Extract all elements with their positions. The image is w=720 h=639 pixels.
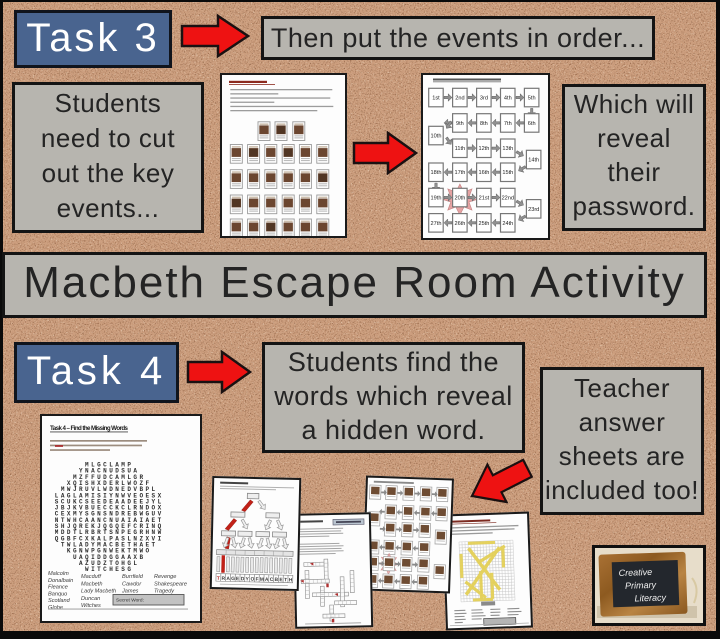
svg-text:14th: 14th [528,158,539,164]
svg-text:T: T [217,576,220,582]
svg-text:F: F [255,577,258,583]
svg-text:Creative: Creative [618,567,652,578]
svg-text:20th: 20th [454,196,465,202]
svg-text:Burrfield: Burrfield [122,574,144,580]
svg-text:Revenge: Revenge [154,574,176,580]
svg-text:Literacy: Literacy [634,592,666,603]
svg-text:5th: 5th [528,96,536,102]
svg-text:Globe: Globe [48,605,63,611]
svg-text:24th: 24th [502,221,513,227]
svg-text:Y: Y [245,576,249,582]
svg-text:Lady Macbeth: Lady Macbeth [81,589,116,595]
svg-text:T: T [284,577,287,583]
svg-text:Shakespeare: Shakespeare [154,581,187,587]
svg-text:Primary: Primary [625,580,657,591]
svg-text:12th: 12th [478,146,489,152]
svg-text:Macbeth: Macbeth [81,581,102,587]
svg-text:D: D [241,576,245,582]
svg-text:G: G [231,576,235,582]
svg-text:11th: 11th [455,146,465,152]
svg-text:13th: 13th [502,146,513,152]
svg-text:Banquo: Banquo [48,591,67,597]
svg-text:1st: 1st [432,96,440,102]
svg-text:Macduff: Macduff [81,574,102,580]
svg-text:3rd: 3rd [480,96,488,102]
svg-text:27th: 27th [431,221,442,227]
svg-text:Malcolm: Malcolm [48,571,69,577]
svg-text:WITCHESG: WITCHESG [85,566,131,573]
svg-text:Donalbain: Donalbain [48,578,73,584]
svg-text:B: B [274,577,278,583]
svg-text:7th: 7th [504,121,512,127]
svg-text:A: A [226,576,230,582]
svg-text:M: M [260,577,264,583]
svg-text:Secret Word:: Secret Word: [116,598,144,604]
svg-text:C: C [270,577,274,583]
svg-text:21st: 21st [479,196,490,202]
svg-text:A: A [265,577,269,583]
svg-text:R: R [221,576,225,582]
svg-text:O: O [250,577,254,583]
svg-text:Witches: Witches [81,603,101,609]
svg-text:26th: 26th [454,221,465,227]
svg-text:25th: 25th [478,221,489,227]
svg-text:22nd: 22nd [502,196,514,202]
svg-text:H: H [289,577,293,583]
svg-text:Scotland: Scotland [48,598,71,604]
svg-text:2nd: 2nd [455,96,464,102]
svg-text:Task 4 – Find the Missing Word: Task 4 – Find the Missing Words [50,425,129,432]
svg-text:Duncan: Duncan [81,596,100,602]
svg-text:6th: 6th [528,121,536,127]
svg-text:9th: 9th [456,121,464,127]
svg-text:Cawdor: Cawdor [122,581,142,587]
svg-text:James: James [121,589,139,595]
svg-text:10th: 10th [431,134,442,140]
svg-text:16th: 16th [478,170,489,176]
svg-text:19th: 19th [431,196,442,202]
svg-text:15th: 15th [502,170,513,176]
svg-text:4th: 4th [504,96,512,102]
svg-text:8th: 8th [480,121,488,127]
svg-text:18th: 18th [431,170,442,176]
svg-text:E: E [279,577,283,583]
svg-text:Tragedy: Tragedy [154,589,175,595]
svg-text:23rd: 23rd [528,207,539,213]
svg-text:Fleance: Fleance [48,585,68,591]
svg-text:17th: 17th [454,170,465,176]
svg-text:E: E [236,576,240,582]
